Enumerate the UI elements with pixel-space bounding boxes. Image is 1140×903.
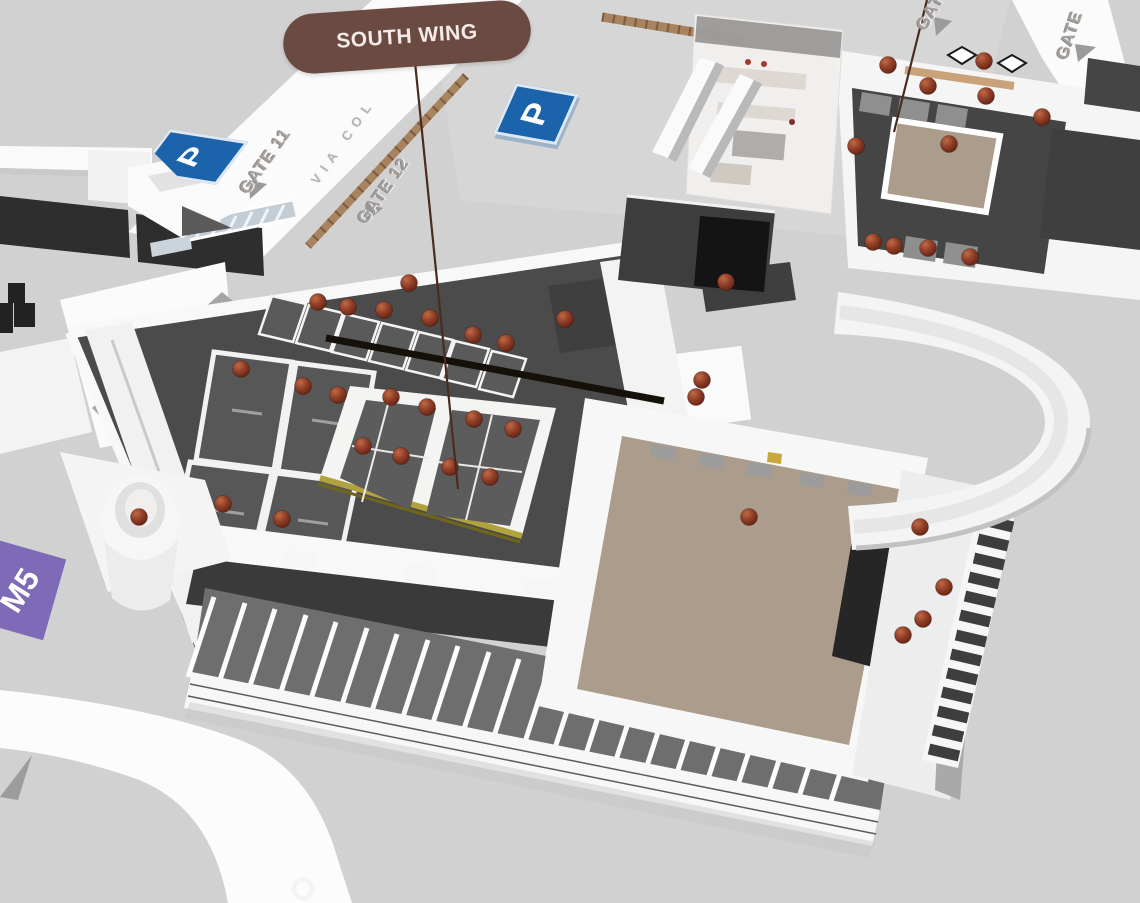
poi-marker[interactable] xyxy=(295,378,312,395)
poi-marker[interactable] xyxy=(865,234,882,251)
poi-marker[interactable] xyxy=(886,238,903,255)
poi-marker[interactable] xyxy=(962,249,979,266)
poi-marker[interactable] xyxy=(694,372,711,389)
poi-marker[interactable] xyxy=(941,136,958,153)
poi-marker[interactable] xyxy=(310,294,327,311)
poi-marker[interactable] xyxy=(880,57,897,74)
poi-marker[interactable] xyxy=(215,496,232,513)
poi-marker[interactable] xyxy=(422,310,439,327)
poi-marker[interactable] xyxy=(330,387,347,404)
poi-marker[interactable] xyxy=(376,302,393,319)
poi-marker[interactable] xyxy=(688,389,705,406)
poi-marker[interactable] xyxy=(936,579,953,596)
poi-marker[interactable] xyxy=(419,399,436,416)
poi-marker[interactable] xyxy=(465,327,482,344)
poi-marker[interactable] xyxy=(274,511,291,528)
poi-marker[interactable] xyxy=(401,275,418,292)
poi-marker[interactable] xyxy=(498,335,515,352)
poi-marker[interactable] xyxy=(912,519,929,536)
poi-marker[interactable] xyxy=(741,509,758,526)
translucent-building xyxy=(686,14,843,214)
northeast-complex xyxy=(836,47,1140,300)
poi-marker[interactable] xyxy=(482,469,499,486)
poi-marker[interactable] xyxy=(355,438,372,455)
poi-marker[interactable] xyxy=(920,78,937,95)
poi-marker[interactable] xyxy=(976,53,993,70)
dark-roof-building xyxy=(618,196,775,296)
poi-marker[interactable] xyxy=(233,361,250,378)
poi-marker[interactable] xyxy=(718,274,735,291)
poi-marker[interactable] xyxy=(1034,109,1051,126)
poi-marker[interactable] xyxy=(466,411,483,428)
poi-marker[interactable] xyxy=(340,299,357,316)
poi-marker[interactable] xyxy=(978,88,995,105)
poi-marker[interactable] xyxy=(505,421,522,438)
venue-3d-map[interactable]: GATE 11 GATE 12 GATE GATE VIA COL P P M5… xyxy=(0,0,1140,903)
poi-marker[interactable] xyxy=(848,138,865,155)
poi-marker[interactable] xyxy=(557,311,574,328)
poi-marker[interactable] xyxy=(131,509,148,526)
poi-marker[interactable] xyxy=(920,240,937,257)
poi-marker[interactable] xyxy=(895,627,912,644)
poi-marker[interactable] xyxy=(915,611,932,628)
hall-yellow-door xyxy=(767,452,782,464)
poi-marker[interactable] xyxy=(393,448,410,465)
poi-marker[interactable] xyxy=(383,389,400,406)
south-wing-callout-label: SOUTH WING xyxy=(336,20,479,54)
